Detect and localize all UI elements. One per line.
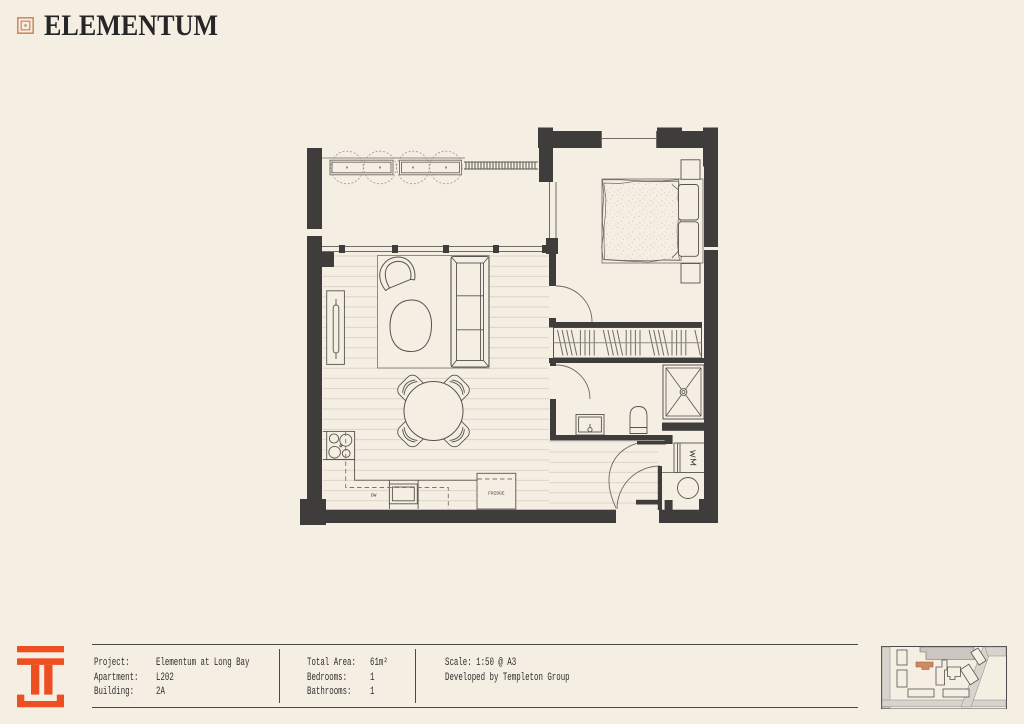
svg-text:FRIDGE: FRIDGE	[488, 490, 505, 496]
svg-text:DW: DW	[371, 493, 377, 499]
